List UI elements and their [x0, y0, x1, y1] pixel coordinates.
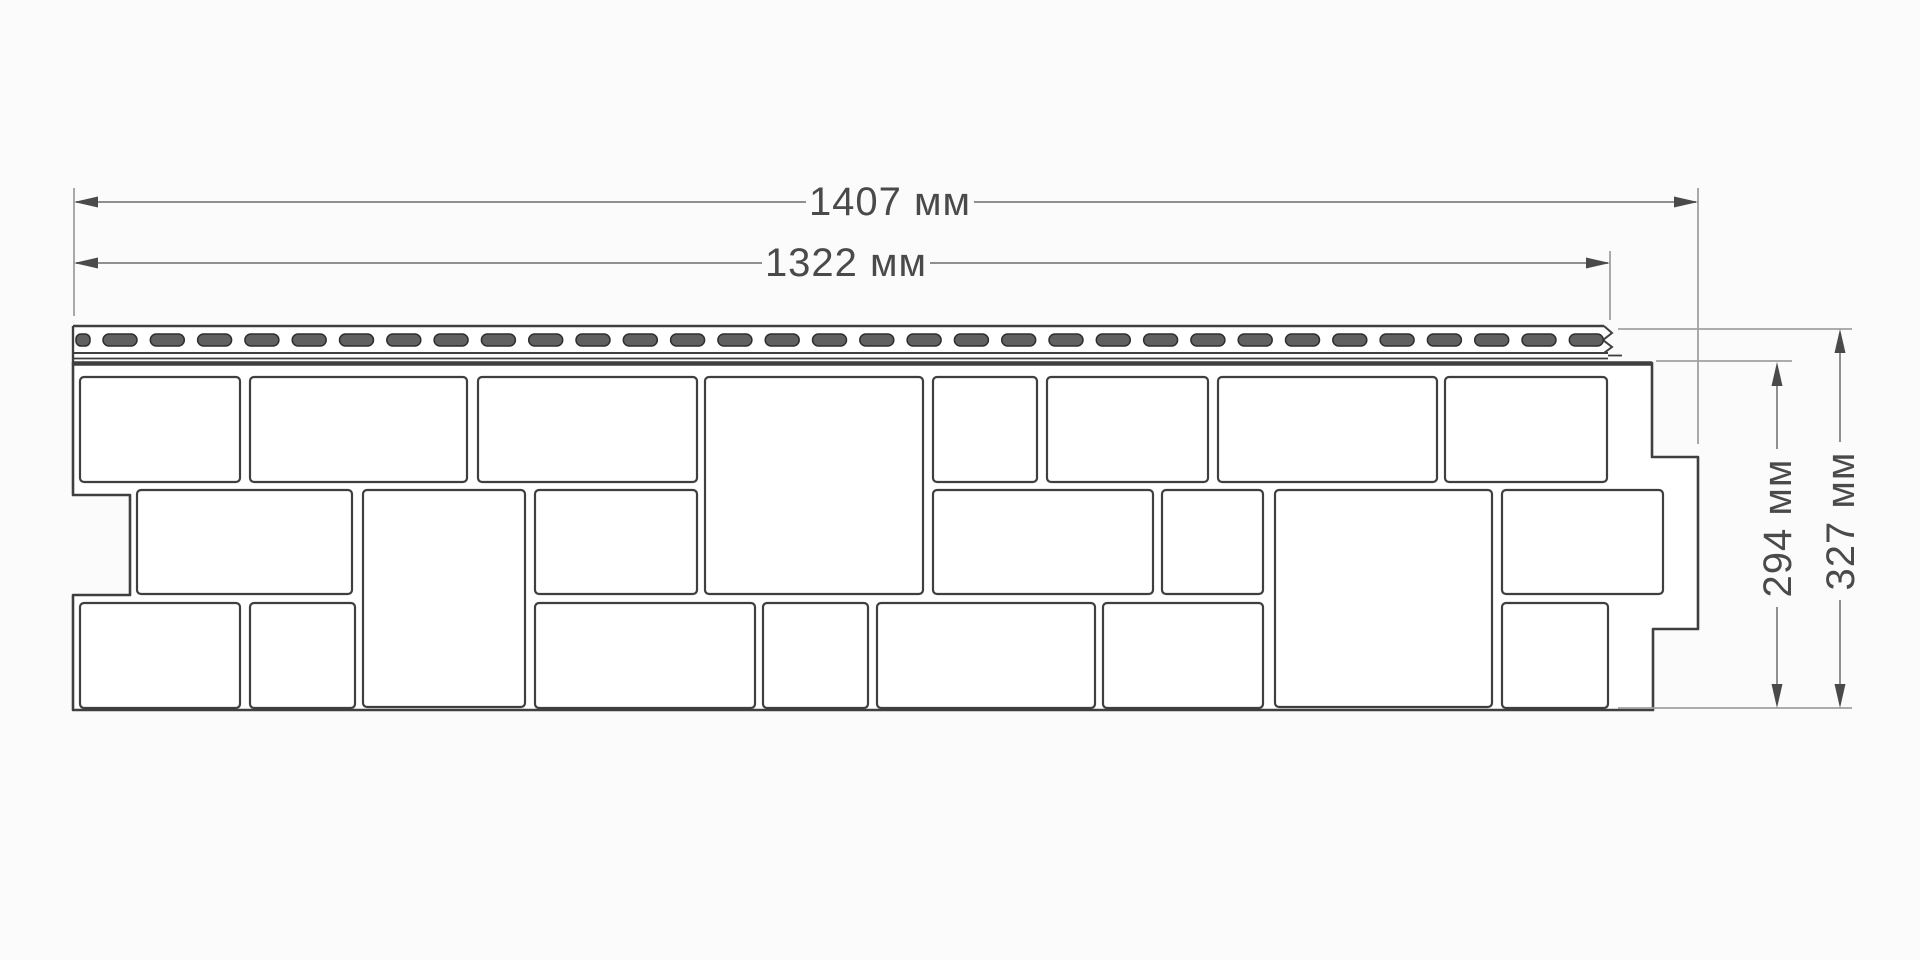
stone	[535, 603, 755, 708]
nail-slot	[954, 334, 988, 346]
nail-slot	[76, 334, 90, 346]
stone	[478, 377, 697, 482]
nail-slot	[481, 334, 515, 346]
arrowhead	[74, 258, 98, 269]
nail-slot	[1569, 334, 1603, 346]
nail-slot	[1144, 334, 1178, 346]
stone	[1502, 603, 1608, 708]
nail-slot	[1475, 334, 1509, 346]
arrowhead	[1835, 329, 1846, 353]
stone	[1162, 490, 1263, 594]
stone	[535, 490, 697, 594]
nail-slot	[1380, 334, 1414, 346]
nail-slot	[1096, 334, 1130, 346]
stone	[250, 603, 355, 708]
stone	[763, 603, 868, 708]
dim-label-overall-height: 327 мм	[1819, 452, 1863, 591]
nail-slot	[671, 334, 705, 346]
nail-slot	[765, 334, 799, 346]
blueprint-canvas: 1407 мм 1322 мм 294 мм 327 мм	[0, 0, 1920, 960]
strip-torn-end	[1603, 326, 1612, 353]
dim-label-working-width: 1322 мм	[765, 241, 927, 285]
arrowhead	[1772, 684, 1783, 708]
dim-label-overall-width: 1407 мм	[809, 180, 971, 224]
nail-slot	[387, 334, 421, 346]
dim-label-working-height: 294 мм	[1756, 459, 1800, 598]
stone	[705, 377, 923, 594]
nail-slot	[150, 334, 184, 346]
nail-slot	[576, 334, 610, 346]
nail-slot	[1286, 334, 1320, 346]
nail-slot	[340, 334, 374, 346]
stone	[137, 490, 352, 594]
nail-slot	[529, 334, 563, 346]
arrowhead	[1674, 197, 1698, 208]
nail-slot	[1238, 334, 1272, 346]
nail-slot	[718, 334, 752, 346]
nail-slot	[1191, 334, 1225, 346]
nail-slot	[860, 334, 894, 346]
arrowhead	[1772, 362, 1783, 386]
stone	[1502, 490, 1663, 594]
stone	[80, 377, 240, 482]
stone	[1275, 490, 1492, 707]
stone	[250, 377, 467, 482]
nail-slot	[103, 334, 137, 346]
stone	[80, 603, 240, 708]
stone	[1047, 377, 1208, 482]
nail-strip-group	[73, 326, 1652, 365]
nail-slot	[292, 334, 326, 346]
arrowhead	[1586, 258, 1610, 269]
stone	[1445, 377, 1607, 482]
stone	[933, 377, 1037, 482]
nail-slot	[245, 334, 279, 346]
nail-slot	[1049, 334, 1083, 346]
nail-slot	[623, 334, 657, 346]
stone	[877, 603, 1095, 708]
nail-slot	[434, 334, 468, 346]
nail-slot	[198, 334, 232, 346]
stone	[1218, 377, 1437, 482]
nail-slot	[1522, 334, 1556, 346]
arrowhead	[1835, 684, 1846, 708]
panel-technical-drawing: 1407 мм 1322 мм 294 мм 327 мм	[0, 0, 1920, 960]
nail-slot	[1333, 334, 1367, 346]
nail-slot	[1427, 334, 1461, 346]
stone	[1103, 603, 1263, 708]
nail-slot	[1002, 334, 1036, 346]
arrowhead	[74, 197, 98, 208]
stone	[933, 490, 1153, 594]
nail-slot	[813, 334, 847, 346]
nail-slot	[907, 334, 941, 346]
stone	[363, 490, 525, 707]
